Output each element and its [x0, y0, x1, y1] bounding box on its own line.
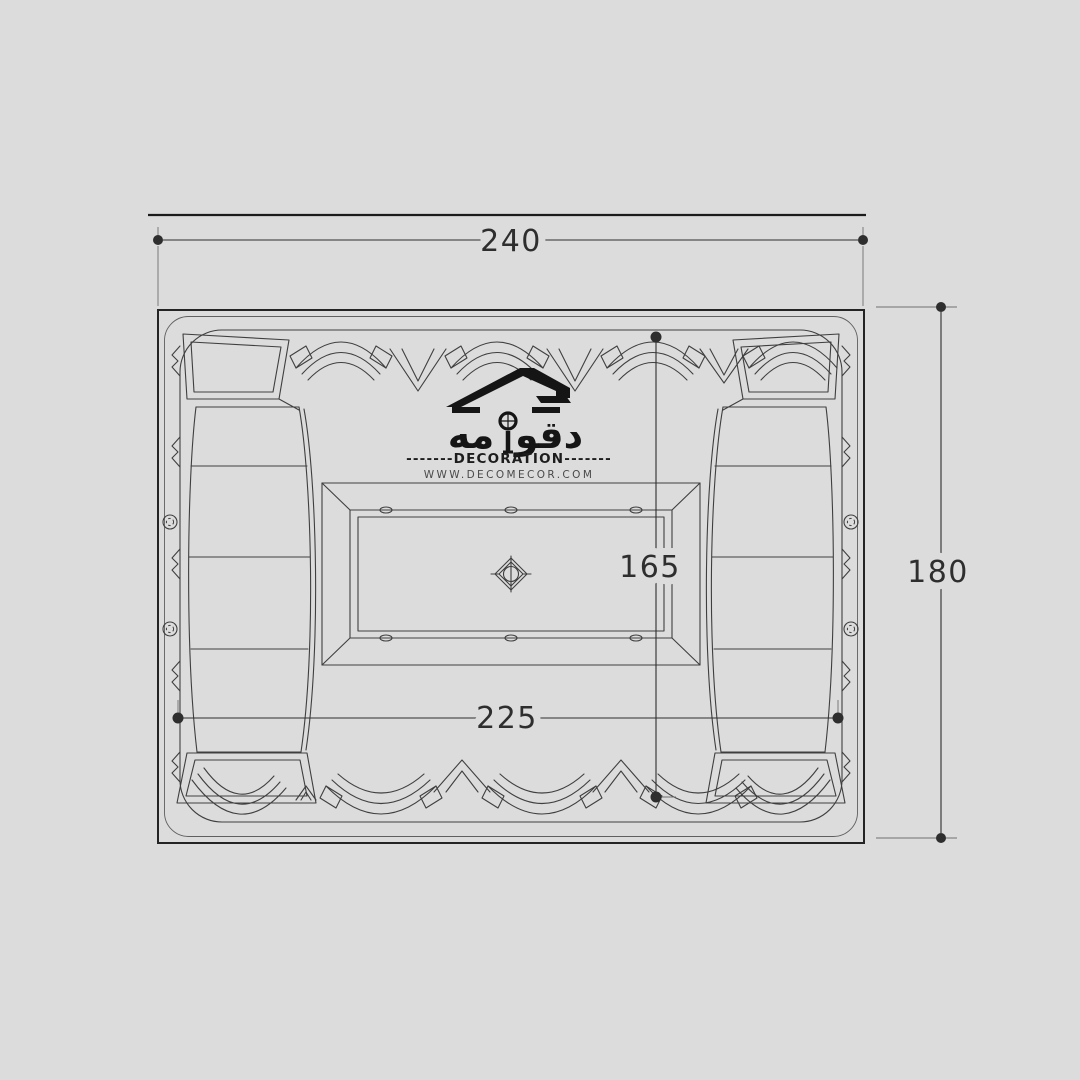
logo: دقو مه -------DECORATION------- WWW.DECO…	[406, 368, 612, 481]
dimension-top-240: 240	[153, 224, 868, 306]
center-medallion-icon	[491, 556, 531, 592]
logo-lollipop-icon	[500, 413, 516, 452]
dim-right-label: 180	[907, 555, 969, 590]
ceiling-plan-page: دقو مه -------DECORATION------- WWW.DECO…	[0, 0, 1080, 1080]
right-mount-circles	[844, 515, 858, 636]
bottom-scallop-arcs	[192, 768, 830, 814]
top-v-spikes	[390, 349, 748, 391]
plan-linework	[158, 310, 864, 843]
logo-decoration-text: -------DECORATION-------	[406, 451, 612, 467]
dimension-inner-horizontal-225: 225	[173, 700, 844, 736]
logo-roof-eave-icon	[536, 396, 571, 403]
left-column-panels	[177, 334, 316, 803]
ceiling-plan-drawing: دقو مه -------DECORATION------- WWW.DECO…	[0, 0, 1080, 1080]
dim-inner-horizontal-label: 225	[476, 701, 538, 736]
dim-top-label: 240	[480, 224, 542, 259]
left-mount-circles	[163, 515, 177, 636]
dim-inner-vertical-label: 165	[619, 550, 681, 585]
dimension-inner-vertical-165: 165	[619, 332, 681, 803]
right-column-panels	[706, 334, 845, 803]
logo-website-text: WWW.DECOMECOR.COM	[424, 469, 595, 481]
dimension-right-180: 180	[876, 302, 969, 843]
